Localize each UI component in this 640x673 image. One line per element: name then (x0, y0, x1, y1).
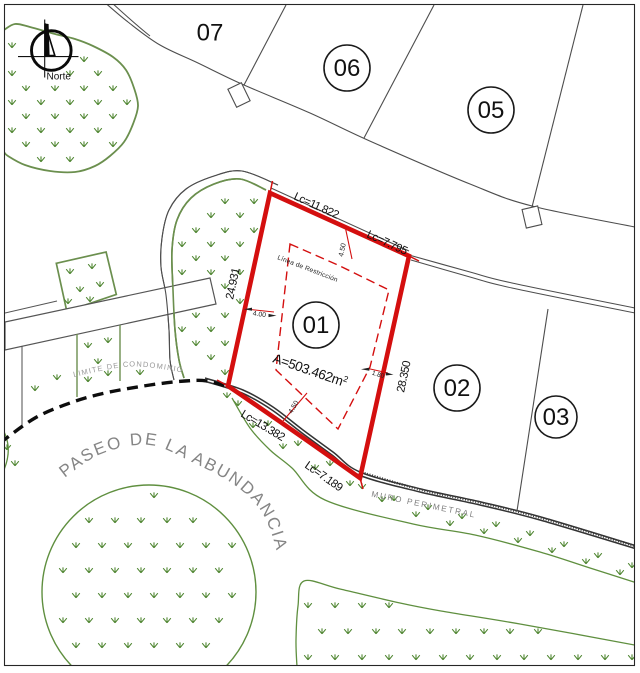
svg-text:05: 05 (478, 97, 505, 124)
svg-text:07: 07 (197, 20, 224, 47)
svg-text:02: 02 (444, 375, 471, 402)
svg-text:Norte: Norte (47, 72, 72, 83)
svg-text:01: 01 (303, 312, 330, 339)
svg-text:06: 06 (334, 55, 361, 82)
svg-text:03: 03 (543, 404, 570, 431)
